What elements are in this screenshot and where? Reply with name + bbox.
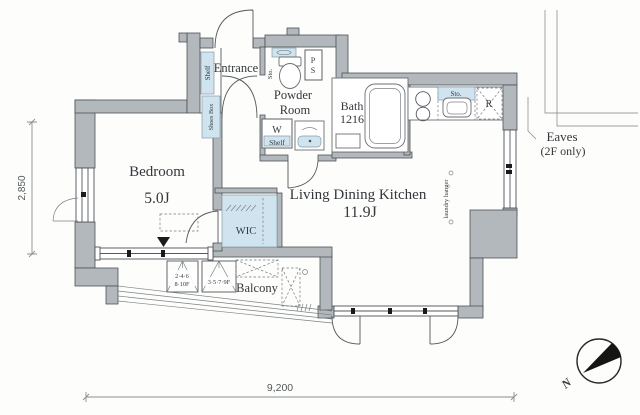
bath-counter — [336, 134, 360, 148]
north-compass — [577, 339, 621, 383]
powder-room-label-1: Powder — [274, 88, 313, 102]
north-label: N — [558, 374, 575, 392]
entry-marker-triangle — [157, 237, 170, 247]
windows — [76, 130, 516, 316]
toilet-bowl — [280, 64, 301, 89]
pipe-space-box — [305, 50, 322, 80]
bath-size-label: 1216 — [340, 112, 364, 126]
drain-mark — [303, 270, 308, 275]
shoes-box-label: Shoes Box — [208, 103, 215, 131]
vertical-dimension-line — [27, 119, 37, 257]
ldk-area-label: 11.9J — [343, 204, 377, 221]
entrance-label: Entrance — [214, 61, 259, 75]
powder-room-label-2: Room — [280, 103, 311, 117]
ldk-misc — [157, 171, 453, 247]
casement-window-swing — [53, 198, 78, 221]
bedroom-door-swing — [186, 211, 218, 243]
bedroom-label: Bedroom — [129, 164, 185, 180]
furniture-placeholder — [160, 214, 198, 231]
eaves-lines — [528, 10, 638, 139]
eaves-label-2: (2F only) — [541, 144, 586, 158]
pipe-space-label-s: S — [311, 66, 315, 75]
horizontal-dimension-line — [83, 392, 517, 402]
washer-shelf-label: Shelf — [269, 138, 285, 147]
entrance-shelf-label: Shelf — [204, 65, 212, 80]
eaves-label-1: Eaves — [546, 129, 577, 144]
refrigerator-label: R — [486, 99, 493, 110]
wic-fixtures — [222, 195, 277, 247]
wic-area — [222, 195, 277, 247]
hatch-b-label: 3·5·7·9F — [208, 279, 231, 286]
powder-room-door-swing — [288, 161, 318, 188]
laundry-hanger-label: laundry hanger — [443, 179, 450, 219]
ldk-door-left-swing — [332, 316, 360, 344]
bedroom-area-label: 5.0J — [144, 190, 169, 207]
balcony-elements — [118, 260, 332, 323]
ldk-label: Living Dining Kitchen — [290, 187, 427, 203]
ldk-door-right-swing — [430, 316, 458, 344]
toilet-storage-label: Sto. — [267, 68, 274, 79]
hatch-a-label-1: 2·4·6 — [175, 273, 189, 280]
pipe-space-label-p: P — [311, 56, 316, 65]
wic-label: WIC — [236, 226, 256, 237]
vertical-dimension-label: 2,850 — [17, 175, 28, 200]
compass-needle — [583, 343, 621, 373]
laundry-hanger-mount — [449, 220, 453, 224]
laundry-hanger-mount — [449, 171, 453, 175]
eaves-leader-line — [528, 97, 536, 139]
kitchen-storage-label: Sto. — [450, 90, 461, 98]
dimension-lines — [27, 119, 517, 402]
hall-door-swings — [222, 76, 257, 118]
floor-plan-drawing: Bedroom 5.0J Living Dining Kitchen 11.9J… — [0, 0, 640, 415]
entry-door-swing — [215, 10, 253, 48]
floor-plan-canvas: Bedroom 5.0J Living Dining Kitchen 11.9J… — [0, 0, 640, 415]
horizontal-dimension-label: 9,200 — [267, 382, 293, 394]
washer-space-label: W — [272, 125, 282, 136]
hatch-a-label-2: 8·10F — [174, 281, 190, 288]
balcony-label: Balcony — [236, 281, 278, 295]
bath-label: Bath — [341, 99, 364, 113]
bathtub — [365, 84, 405, 148]
toilet-shelf — [272, 48, 296, 57]
